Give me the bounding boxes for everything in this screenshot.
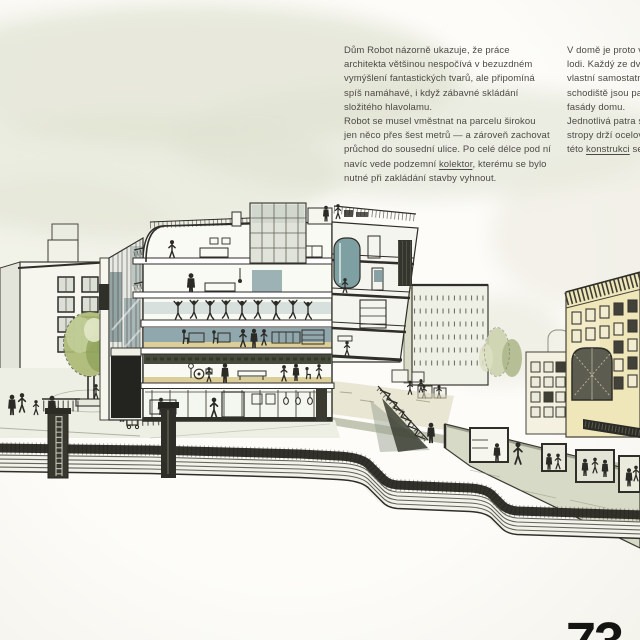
access-shaft-left xyxy=(45,408,71,478)
caption-line: V domě je proto v xyxy=(567,44,640,58)
caption-text: navíc vede podzemní xyxy=(344,159,439,170)
access-shaft-center xyxy=(158,402,179,478)
caption-line: této konstrukci se xyxy=(567,143,640,157)
caption-text: se xyxy=(630,144,640,155)
teal-stair-drum xyxy=(334,238,360,288)
caption-line: schodiště jsou pa xyxy=(567,87,640,101)
caption-line: vlastní samostatn xyxy=(567,72,640,86)
glass-facade xyxy=(109,238,143,420)
caption-line: vymýšlení fantastických tvarů, ale připo… xyxy=(344,72,551,86)
caption-line: navíc vede podzemní kolektor, kterému se… xyxy=(344,158,551,172)
caption-column-left: Dům Robot názorně ukazuje, že práce arch… xyxy=(344,44,551,186)
caption-line: Jednotlivá patra s xyxy=(567,115,640,129)
corner-building-yellow xyxy=(566,272,640,437)
caption-line: nutné při zakládání stavby vyhnout. xyxy=(344,172,551,186)
kolektor-reference-link[interactable]: kolektor xyxy=(439,159,473,170)
book-page: Dům Robot názorně ukazuje, že práce arch… xyxy=(0,0,640,640)
cream-building xyxy=(526,352,570,434)
caption-line: lodi. Každý ze dve xyxy=(567,58,640,72)
caption-line: Dům Robot názorně ukazuje, že práce xyxy=(344,44,551,58)
caption-line: Robot se musel vměstnat na parcelu širok… xyxy=(344,115,551,129)
konstrukci-reference-link[interactable]: konstrukci xyxy=(586,144,630,155)
caption-column-right: V domě je proto v lodi. Každý ze dve vla… xyxy=(567,44,640,158)
arched-entrance xyxy=(572,348,612,400)
hatched-window xyxy=(398,240,412,286)
caption-line: jen něco přes šest metrů — a zároveň zac… xyxy=(344,129,551,143)
caption-line: architekta většinou nespočívá v bezuzdné… xyxy=(344,58,551,72)
caption-line: složitého hlavolamu. xyxy=(344,101,551,115)
caption-line: fasády domu. xyxy=(567,101,640,115)
side-shaft xyxy=(316,388,327,421)
caption-line: stropy drží ocelov xyxy=(567,129,640,143)
right-wing-balconies xyxy=(323,204,418,362)
caption-line: průchod do sousední ulice. Po celé délce… xyxy=(344,143,551,157)
page-number: 73 xyxy=(566,611,622,640)
caption-text: této xyxy=(567,144,586,155)
facade-sign xyxy=(99,284,109,310)
caption-text: , kterému se bylo xyxy=(473,159,547,170)
caption-line: spíš namáhavé, i když zábavné skládání xyxy=(344,87,551,101)
entrance xyxy=(111,356,141,418)
